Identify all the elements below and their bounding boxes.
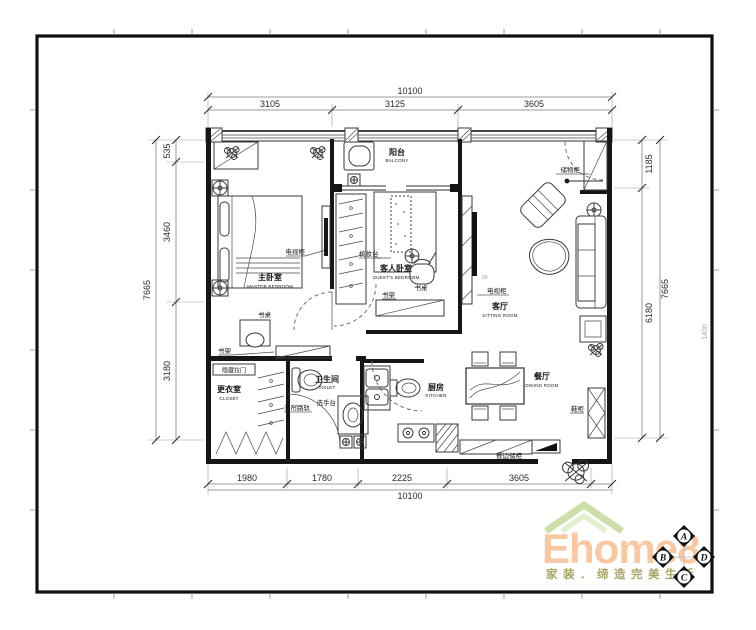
- room-toilet: 卫生间 TOILET 洗手台 浴帘路轨: [284, 368, 368, 448]
- dim-bottom-2: 1780: [312, 473, 332, 483]
- dimensions-bottom: 1980 1780 2225 3605 10100: [204, 464, 616, 501]
- master-desk: [240, 320, 270, 347]
- wall-left: [206, 128, 211, 464]
- dim-bottom-1: 1980: [237, 473, 257, 483]
- armchair: [518, 180, 567, 229]
- plant-icon: [589, 344, 604, 357]
- room-label-zh: 厨房: [428, 382, 444, 392]
- ceiling-lamp-icon: [405, 249, 419, 263]
- dim-top-total: 10100: [397, 86, 422, 96]
- dining-chair: [500, 352, 516, 366]
- dim-bottom-3: 2225: [392, 473, 412, 483]
- ceiling-lamp-icon: [587, 203, 601, 217]
- svg-text:C: C: [681, 574, 688, 584]
- stove: [398, 424, 434, 442]
- dim-right-2: 6180: [644, 303, 654, 323]
- room-label-en: BALCONY: [386, 158, 409, 163]
- dim-right-1: 1185: [644, 154, 654, 173]
- room-label-zh: 阳台: [389, 147, 405, 157]
- svg-text:B: B: [659, 554, 666, 564]
- wardrobe-label: 梳妆台: [359, 249, 379, 258]
- coffee-table: [530, 239, 569, 274]
- master-door-arc: [294, 292, 332, 330]
- dimensions-top: 10100 3105 3125 3605: [204, 86, 616, 127]
- tv-cabinet-label: 电视柜: [286, 247, 306, 256]
- counter-hatch: [436, 424, 458, 452]
- room-label-en: GUEST'S BEDROOM: [373, 275, 420, 280]
- room-label-zh: 主卧室: [258, 272, 282, 282]
- shoe-cabinet-label: 鞋柜: [571, 404, 585, 413]
- dim-bottom-4: 3605: [509, 473, 529, 483]
- dimensions-right: 1185 6180 7665: [614, 136, 670, 442]
- door-swings: [294, 142, 603, 411]
- tv-screen: [472, 212, 477, 276]
- tv-dimension-note: 00: [482, 275, 488, 281]
- svg-text:A: A: [680, 533, 687, 543]
- dim-right-total: 7665: [660, 279, 670, 299]
- room-guest-bedroom: 客人卧室 GUEST'S BEDROOM 书桌 书架 梳妆台: [336, 192, 444, 316]
- room-label-en: DINING ROOM: [525, 383, 558, 388]
- kitchen-basin: [390, 379, 420, 397]
- floor-drain-icon: [348, 174, 360, 186]
- dining-chair: [472, 352, 488, 366]
- floor-drain-icon: [340, 436, 352, 448]
- tv-cabinet-label: 电视柜: [487, 286, 507, 295]
- shower-rail-label: 浴帘路轨: [284, 403, 311, 412]
- floor-plan-drawing: 1400 10100 3105 3125 3605 1980 1780 2225…: [0, 0, 756, 630]
- room-label-zh: 更衣室: [217, 384, 241, 394]
- shoe-cabinet: [588, 388, 605, 438]
- dimensions-left: 535 3460 3180 7665: [142, 136, 204, 444]
- sofa: [576, 216, 606, 308]
- room-label-en: TOILET: [319, 385, 336, 390]
- room-label-zh: 餐厅: [533, 371, 550, 381]
- bookshelf-label: 书架: [218, 346, 232, 355]
- desk-label: 书桌: [258, 310, 272, 319]
- wall-guest-bottom: [366, 330, 460, 334]
- wall-kitchen-top: [364, 359, 424, 363]
- hanger-marks: [339, 199, 363, 288]
- logo-brand: Ehome8: [542, 525, 700, 572]
- ruler-note: 1400: [702, 324, 709, 340]
- wall-storage-bottom: [580, 190, 607, 194]
- closet-hangers: [258, 372, 284, 426]
- tv-cabinet-living: [462, 196, 477, 304]
- dining-table: [466, 368, 524, 404]
- svg-text:D: D: [700, 554, 708, 564]
- guest-door-arc: [334, 284, 376, 326]
- bookshelf-label: 书架: [382, 290, 396, 299]
- hidden-door-label: 隐藏拉门: [222, 367, 246, 375]
- room-kitchen: 厨房 KITCHEN: [364, 366, 458, 452]
- dim-left-1: 535: [162, 143, 172, 158]
- dim-top-1: 3105: [260, 99, 280, 109]
- desk-label: 书桌: [415, 283, 429, 292]
- sheet-edge-ticks: [30, 29, 719, 599]
- dining-chair: [472, 406, 488, 420]
- dim-top-3: 3605: [524, 99, 544, 109]
- sideboard-label: 餐边储柜: [496, 451, 523, 460]
- wall-guest-living: [458, 139, 462, 334]
- room-closet: 隐藏拉门 更衣室 CLOSET: [213, 364, 284, 454]
- walls: [206, 128, 612, 464]
- dim-left-3: 3180: [162, 361, 172, 381]
- side-table: [580, 316, 606, 342]
- sideboard: [460, 440, 560, 454]
- wash-basin-label: 洗手台: [317, 398, 337, 407]
- room-label-zh: 客人卧室: [379, 263, 412, 273]
- room-balcony: 阳台 BALCONY: [344, 142, 408, 186]
- room-label-zh: 卫生间: [315, 374, 339, 384]
- wall-right: [607, 128, 612, 464]
- plant-icon: [225, 147, 240, 160]
- room-label-en: SITTING ROOM: [482, 313, 517, 318]
- room-sitting-room: 储物柜 00 电视柜: [462, 141, 607, 357]
- dim-left-total: 7665: [142, 280, 152, 300]
- master-tv-cabinet: [322, 206, 330, 268]
- floor-plan-sheet: 1400 10100 3105 3125 3605 1980 1780 2225…: [0, 0, 756, 630]
- plant-icon: [311, 147, 326, 160]
- dim-top-2: 3125: [385, 99, 405, 109]
- logo: Ehome8 家装．缔造完美生活: [542, 505, 700, 581]
- wall-bottom-left: [206, 459, 538, 464]
- dim-bottom-total: 10100: [397, 491, 422, 501]
- sheet-border: 1400: [30, 29, 719, 599]
- room-label-en: CLOSET: [219, 396, 238, 401]
- dim-left-2: 3460: [162, 222, 172, 242]
- closet-floor-hatch: [216, 432, 283, 454]
- room-master-bedroom: 主卧室 MASTER BEDROOM 书桌 书架 电视柜: [212, 142, 330, 358]
- storage-cabinet-label: 储物柜: [561, 165, 581, 174]
- room-label-en: KITCHEN: [425, 393, 446, 398]
- nightstand-lamp: [212, 180, 228, 196]
- wall-master-guest: [330, 139, 334, 289]
- room-label-zh: 客厅: [491, 301, 508, 311]
- dining-chair: [500, 406, 516, 420]
- room-label-en: MASTER BEDROOM: [247, 284, 293, 289]
